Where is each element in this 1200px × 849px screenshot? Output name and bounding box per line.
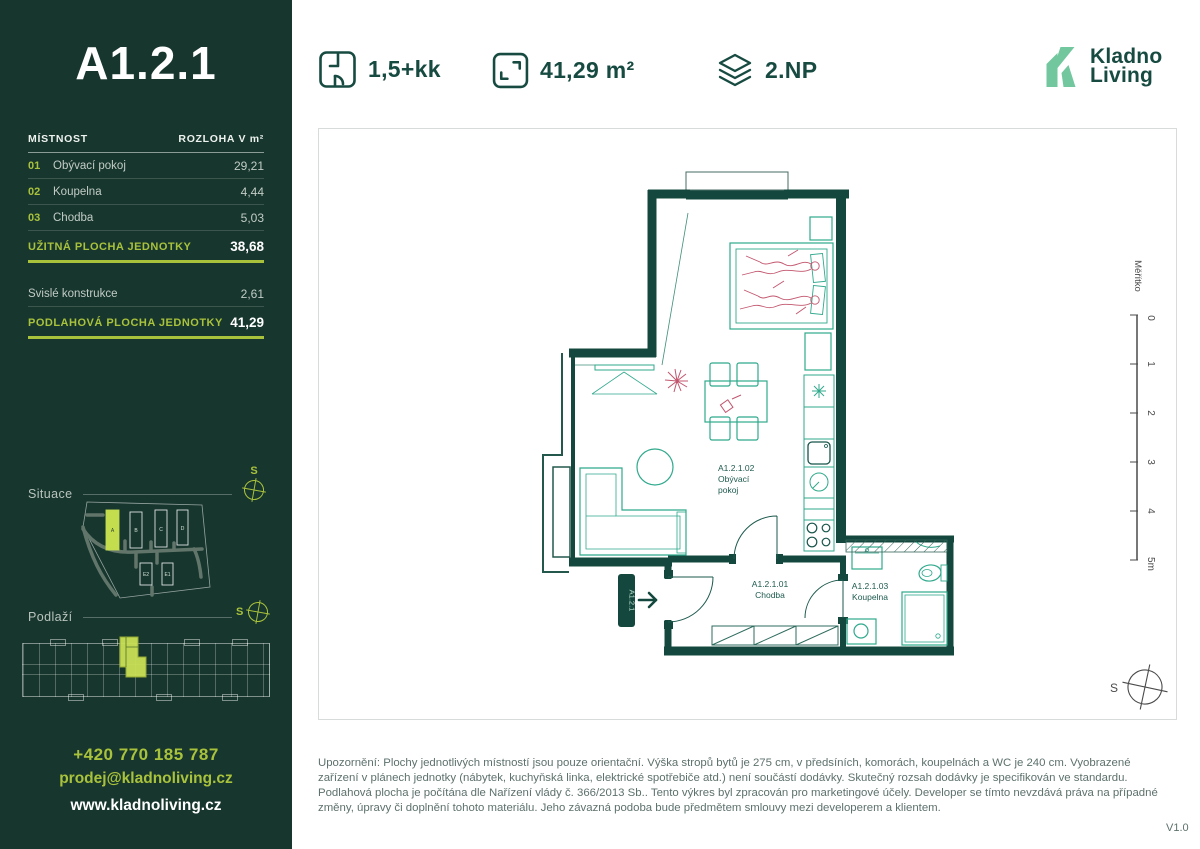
table-row: 03 Chodba 5,03 (28, 205, 264, 231)
room-area-table: MÍSTNOST ROZLOHA V m² 01 Obývací pokoj 2… (28, 133, 264, 263)
floor-item: 2.NP (716, 51, 817, 89)
divider (83, 617, 233, 618)
floor-area-label: PODLAHOVÁ PLOCHA JEDNOTKY (28, 317, 223, 329)
phone-number[interactable]: +420 770 185 787 (0, 745, 292, 765)
scale-tick-5: 5m (1145, 557, 1156, 571)
usable-area-value: 38,68 (230, 239, 264, 254)
disposition-value: 1,5+kk (368, 56, 441, 83)
site-plan: A B C D E2 E1 (16, 497, 230, 609)
scale-tick-1: 1 (1145, 361, 1156, 367)
col-room-header: MÍSTNOST (28, 133, 88, 145)
floor-area-row: PODLAHOVÁ PLOCHA JEDNOTKY 41,29 (28, 307, 264, 336)
row-number: 02 (28, 186, 53, 198)
table-row: 02 Koupelna 4,44 (28, 179, 264, 205)
site-building-e2-label: E2 (143, 572, 149, 578)
row-area: 29,21 (234, 159, 264, 173)
layers-icon (716, 51, 754, 89)
floor-plan-strip (16, 631, 276, 709)
highlighted-unit (112, 635, 152, 687)
hall-name: Chodba (755, 590, 785, 600)
entry-badge-label: A1.2.1 (628, 590, 637, 612)
site-building-b-label: B (134, 528, 138, 534)
snowflake-icon (812, 384, 826, 398)
email-address[interactable]: prodej@kladnoliving.cz (0, 770, 292, 788)
row-number: 03 (28, 212, 53, 224)
website-block: www.kladnoliving.cz (0, 797, 292, 815)
row-number: 01 (28, 160, 53, 172)
usable-area-row: UŽITNÁ PLOCHA JEDNOTKY 38,68 (28, 231, 264, 260)
row-area: 4,44 (241, 185, 264, 199)
disposition-item: 1,5+kk (318, 50, 441, 89)
hall-code: A1.2.1.01 (752, 579, 789, 589)
floor-area-table: Svislé konstrukce 2,61 PODLAHOVÁ PLOCHA … (28, 281, 264, 339)
row-area: 5,03 (241, 211, 264, 225)
row-name: Chodba (53, 212, 93, 224)
site-building-c-label: C (159, 527, 163, 533)
area-value: 41,29 m² (540, 57, 634, 84)
unit-title: A1.2.1 (0, 36, 292, 90)
scale-tick-4: 4 (1145, 508, 1156, 514)
floorplan-icon (318, 50, 357, 89)
compass-icon (242, 478, 266, 502)
site-building-e1-label: E1 (164, 572, 170, 578)
brand-logo: Kladno Living (1043, 47, 1162, 88)
brand-line2: Living (1090, 66, 1162, 85)
site-building-d-label: D (181, 526, 185, 532)
vertical-structures-value: 2,61 (241, 287, 264, 301)
area-icon (492, 52, 529, 89)
podlazi-label-text: Podlaží (28, 610, 73, 624)
website-url[interactable]: www.kladnoliving.cz (0, 797, 292, 815)
scale-tick-2: 2 (1145, 410, 1156, 416)
compass-letter: S (236, 606, 243, 618)
plan-border (319, 129, 1177, 720)
living-room-name-2: pokoj (718, 485, 738, 495)
compass-letter: S (250, 465, 257, 477)
plan-compass-letter: S (1110, 681, 1118, 695)
accent-divider (28, 336, 264, 339)
kladno-living-logo-mark (1043, 47, 1080, 88)
vertical-structures-label: Svislé konstrukce (28, 288, 117, 300)
scale-tick-0: 0 (1145, 315, 1156, 321)
living-room-code: A1.2.1.02 (718, 463, 755, 473)
row-name: Koupelna (53, 186, 102, 198)
table-row: 01 Obývací pokoj 29,21 (28, 153, 264, 179)
vertical-structures-row: Svislé konstrukce 2,61 (28, 281, 264, 307)
scale-title: Měřítko (1132, 260, 1143, 292)
usable-area-label: UŽITNÁ PLOCHA JEDNOTKY (28, 241, 191, 253)
brand-name: Kladno Living (1090, 47, 1162, 88)
scale-tick-3: 3 (1145, 459, 1156, 465)
compass-icon (246, 600, 270, 624)
version-label: V1.0 (1166, 822, 1189, 834)
divider (83, 494, 233, 495)
situace-compass: S (242, 465, 266, 502)
installation-shaft (846, 540, 947, 552)
table-header: MÍSTNOST ROZLOHA V m² (28, 133, 264, 153)
living-room-name-1: Obývací (718, 474, 750, 484)
floor-plan-drawing: A1.2.1.02 Obývací pokoj A1.2.1.01 Chodba… (318, 128, 1177, 720)
accent-divider (28, 260, 264, 263)
floor-plan-area: A1.2.1.02 Obývací pokoj A1.2.1.01 Chodba… (318, 128, 1177, 720)
floor-value: 2.NP (765, 57, 817, 84)
area-item: 41,29 m² (492, 52, 634, 89)
disclaimer-text: Upozornění: Plochy jednotlivých místnost… (318, 756, 1164, 817)
window-band (686, 191, 788, 200)
contact-block: +420 770 185 787 prodej@kladnoliving.cz (0, 745, 292, 788)
row-name: Obývací pokoj (53, 160, 126, 172)
bath-name: Koupelna (852, 592, 888, 602)
sidebar: A1.2.1 MÍSTNOST ROZLOHA V m² 01 Obývací … (0, 0, 292, 849)
podlazi-compass: S (236, 600, 270, 624)
col-area-header: ROZLOHA V m² (178, 133, 264, 145)
bath-code: A1.2.1.03 (852, 581, 889, 591)
podlazi-section-label: Podlaží (28, 610, 232, 624)
floor-area-value: 41,29 (230, 315, 264, 330)
